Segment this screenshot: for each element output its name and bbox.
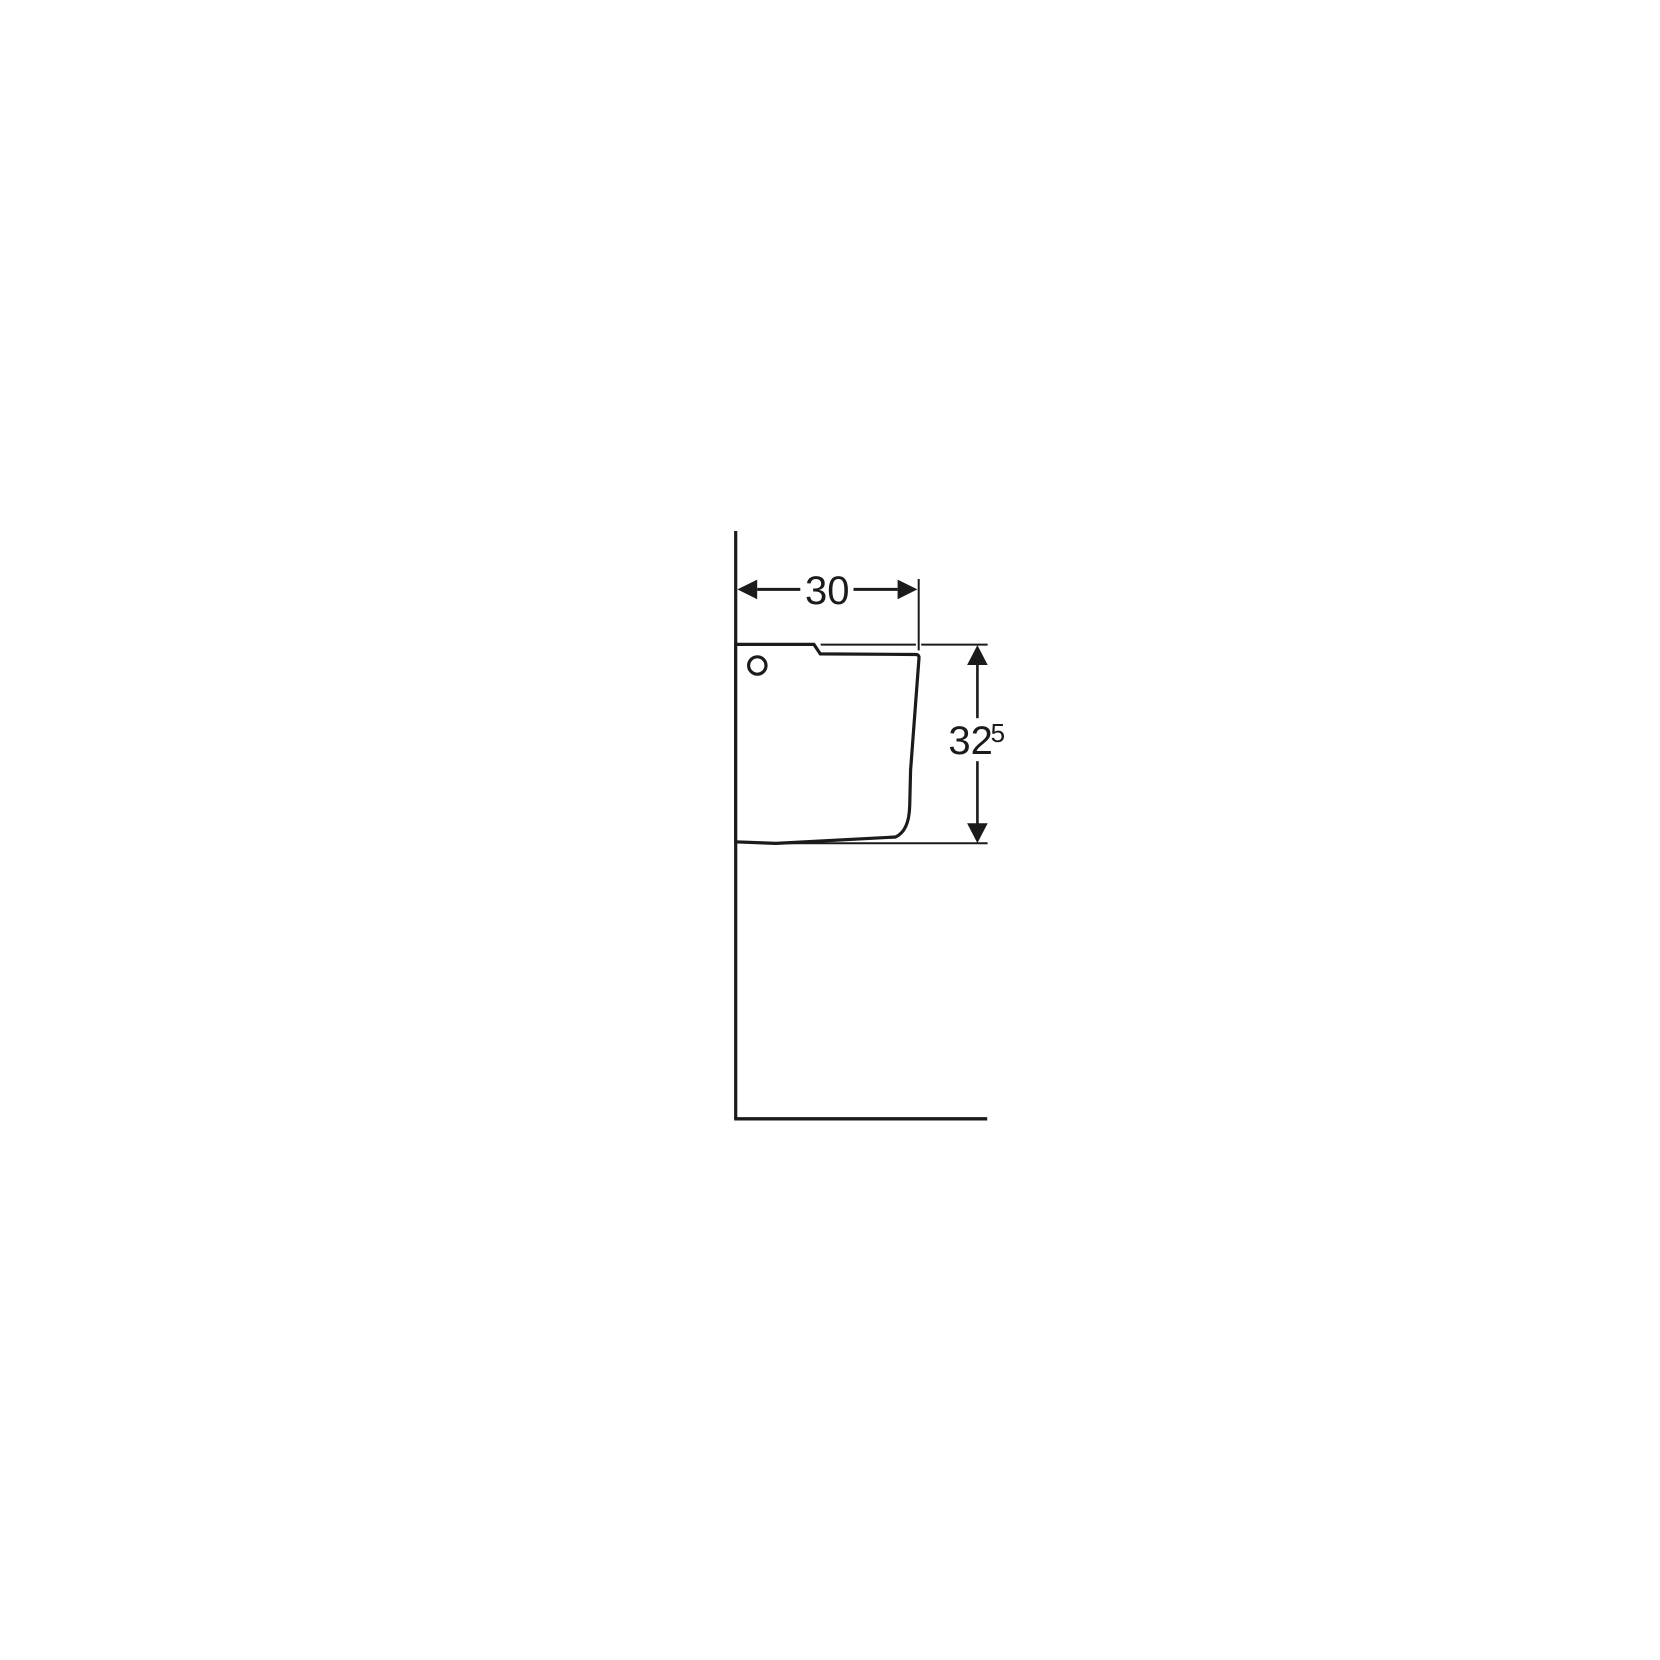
svg-text:5: 5: [991, 718, 1005, 748]
svg-text:32: 32: [948, 719, 993, 763]
svg-text:30: 30: [805, 569, 850, 613]
